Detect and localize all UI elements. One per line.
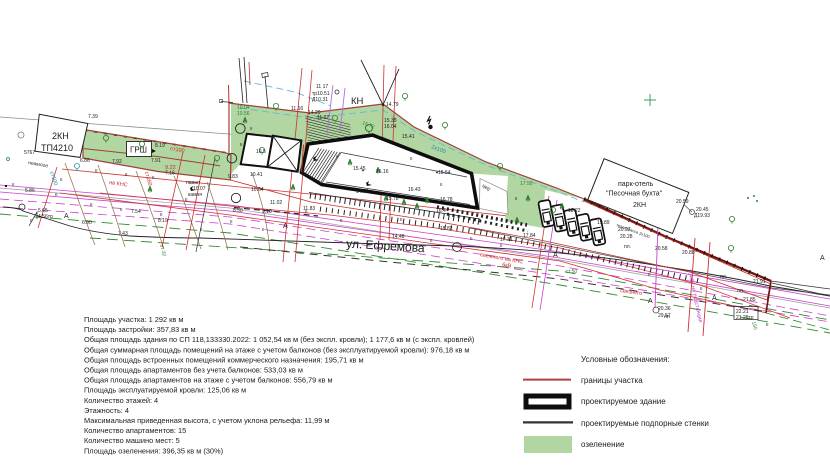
svg-text:11 17: 11 17 — [316, 84, 328, 90]
svg-text:16.16: 16.16 — [376, 169, 389, 175]
svg-text:Площадь эксплуатируемой кровли: Площадь эксплуатируемой кровли: 125,06 к… — [84, 386, 246, 395]
svg-text:ТП4210: ТП4210 — [41, 143, 73, 153]
svg-text:11.16: 11.16 — [291, 106, 303, 112]
svg-text:10.41: 10.41 — [250, 172, 263, 178]
svg-text:А: А — [648, 298, 653, 305]
svg-text:II: II — [60, 177, 63, 182]
svg-text:А: А — [283, 223, 288, 230]
svg-text:проектируемые подпорные стенки: проектируемые подпорные стенки — [581, 419, 709, 428]
svg-text:6.86: 6.86 — [80, 158, 90, 164]
svg-text:II: II — [470, 236, 473, 241]
svg-text:II: II — [185, 197, 188, 202]
svg-text:II: II — [250, 126, 253, 131]
svg-text:10.5: 10.5 — [256, 149, 266, 155]
svg-text:Количество машино мест: 5: Количество машино мест: 5 — [84, 436, 180, 445]
svg-text:II: II — [160, 212, 163, 217]
svg-text:II: II — [240, 142, 243, 147]
svg-text:Этажность: 4: Этажность: 4 — [84, 406, 129, 415]
svg-text:Количество этажей: 4: Количество этажей: 4 — [84, 396, 158, 405]
svg-text:14.76: 14.76 — [356, 189, 369, 195]
svg-text:20.28: 20.28 — [620, 234, 633, 240]
svg-text:II: II — [55, 192, 58, 197]
svg-text:II: II — [648, 272, 651, 277]
svg-text:Площадь застройки: 357,83 кв м: Площадь застройки: 357,83 кв м — [84, 325, 196, 334]
svg-text:ГРШ: ГРШ — [130, 146, 147, 155]
svg-text:19.89: 19.89 — [597, 220, 610, 226]
svg-text:7.92: 7.92 — [112, 159, 122, 165]
svg-text:15.41: 15.41 — [402, 134, 415, 140]
svg-text:Общая площадь здания по СП 118: Общая площадь здания по СП 118,133330.20… — [84, 335, 474, 344]
svg-text:16.43: 16.43 — [408, 187, 421, 193]
svg-text:7.16: 7.16 — [165, 171, 175, 177]
svg-text:II: II — [340, 218, 343, 223]
svg-text:Площадь участка: 1 292 кв м: Площадь участка: 1 292 кв м — [84, 315, 183, 324]
svg-text:4.56тр: 4.56тр — [38, 214, 53, 220]
svg-text:8.58: 8.58 — [233, 208, 243, 214]
svg-text:А: А — [553, 252, 558, 259]
svg-text:8.19: 8.19 — [155, 143, 165, 149]
svg-text:Общая площадь апартаментов на: Общая площадь апартаментов на этаже с уч… — [84, 376, 333, 385]
svg-text:21.28тр: 21.28тр — [736, 315, 754, 321]
svg-text:15.78: 15.78 — [386, 196, 399, 202]
svg-text:пл.: пл. — [624, 244, 631, 250]
svg-text:17.50: 17.50 — [520, 181, 533, 187]
svg-text:7.54: 7.54 — [131, 209, 141, 215]
svg-text:20.58: 20.58 — [655, 246, 668, 252]
svg-text:II: II — [305, 209, 308, 214]
svg-text:Максимальная приведенная высот: Максимальная приведенная высота, с учето… — [84, 416, 329, 425]
svg-text:11.02: 11.02 — [270, 200, 282, 206]
svg-text:II: II — [12, 182, 15, 187]
svg-text:6.90: 6.90 — [82, 220, 92, 226]
svg-text:15.45: 15.45 — [353, 166, 366, 172]
svg-text:II: II — [500, 243, 503, 248]
svg-text:КН: КН — [351, 96, 364, 107]
svg-text:А: А — [712, 295, 717, 302]
svg-text:II: II — [410, 156, 413, 161]
svg-text:10.56: 10.56 — [237, 111, 250, 117]
svg-text:проектируемое здание: проектируемое здание — [581, 397, 666, 406]
svg-text:18.54: 18.54 — [438, 170, 451, 176]
svg-text:камня: камня — [188, 192, 202, 198]
svg-text:II: II — [262, 227, 265, 232]
svg-text:II: II — [95, 168, 98, 173]
svg-text:озеленение: озеленение — [581, 440, 625, 449]
svg-text:парк-отель: парк-отель — [618, 181, 654, 188]
svg-text:А: А — [64, 213, 69, 220]
svg-text:15.82: 15.82 — [440, 226, 453, 232]
svg-text:II: II — [30, 218, 33, 223]
svg-text:лл: лл — [737, 288, 743, 294]
svg-text:границы участка: границы участка — [581, 376, 643, 385]
svg-text:II: II — [430, 238, 433, 243]
svg-text:16.4: 16.4 — [436, 208, 446, 214]
svg-text:9.18: 9.18 — [262, 209, 272, 215]
svg-text:II: II — [700, 286, 703, 291]
svg-text:II: II — [735, 296, 738, 301]
svg-text:20.88: 20.88 — [682, 250, 695, 256]
svg-text:II: II — [766, 322, 769, 327]
svg-text:Д10.31: Д10.31 — [312, 97, 328, 103]
svg-text:Условные обозначения:: Условные обозначения: — [581, 355, 670, 364]
svg-text:II: II — [336, 154, 339, 159]
svg-text:II: II — [120, 207, 123, 212]
svg-text:II: II — [152, 175, 155, 180]
svg-text:II: II — [230, 219, 233, 224]
svg-text:II: II — [560, 226, 563, 231]
svg-text:20.36: 20.36 — [658, 306, 671, 312]
svg-text:21.91: 21.91 — [753, 279, 766, 285]
svg-text:Общая площадь апартаментов без: Общая площадь апартаментов без учета бал… — [84, 366, 303, 375]
svg-text:Д19.93: Д19.93 — [694, 213, 710, 219]
svg-text:II: II — [598, 254, 601, 259]
svg-text:14.48: 14.48 — [392, 234, 405, 240]
svg-text:20.59: 20.59 — [676, 199, 689, 205]
svg-text:II: II — [440, 182, 443, 187]
svg-text:А: А — [820, 255, 825, 262]
svg-text:"Песочная бухта": "Песочная бухта" — [606, 190, 663, 198]
svg-text:II: II — [125, 172, 128, 177]
svg-text:II: II — [400, 217, 403, 222]
svg-text:16.04: 16.04 — [384, 124, 397, 130]
svg-text:14.79: 14.79 — [386, 102, 399, 108]
svg-text:Количество апартаментов: 15: Количество апартаментов: 15 — [84, 426, 186, 435]
svg-text:7.43: 7.43 — [118, 231, 128, 237]
svg-text:2КН: 2КН — [633, 202, 646, 209]
svg-text:16.78: 16.78 — [440, 197, 453, 203]
svg-text:17.84: 17.84 — [523, 233, 536, 239]
svg-text:II: II — [90, 202, 93, 207]
svg-text:II: II — [200, 227, 203, 232]
svg-text:11.97: 11.97 — [317, 115, 329, 121]
svg-text:29.57: 29.57 — [658, 313, 671, 319]
svg-text:II: II — [515, 196, 518, 201]
svg-text:пл.: пл. — [720, 274, 727, 280]
svg-text:Общая площадь встроенных помещ: Общая площадь встроенных помещений комме… — [84, 355, 364, 364]
svg-text:10.64: 10.64 — [251, 187, 264, 193]
svg-text:Площадь озеленения: 396,35 кв: Площадь озеленения: 396,35 кв м (30%) — [84, 446, 223, 455]
svg-text:21.85: 21.85 — [743, 297, 756, 303]
svg-text:8.19: 8.19 — [158, 218, 168, 224]
svg-text:7.39: 7.39 — [88, 114, 98, 120]
svg-text:2КН: 2КН — [52, 131, 69, 141]
svg-text:ст.50: ст.50 — [566, 269, 577, 275]
svg-text:9.83: 9.83 — [228, 174, 238, 180]
svg-text:20.97: 20.97 — [618, 227, 631, 233]
svg-text:Общая суммарная площадь помеще: Общая суммарная площадь помещений на эта… — [84, 345, 470, 354]
svg-text:5.86: 5.86 — [25, 188, 35, 194]
svg-text:7.91: 7.91 — [151, 158, 161, 164]
svg-text:18.22: 18.22 — [568, 208, 581, 214]
svg-text:5767: 5767 — [24, 150, 35, 156]
